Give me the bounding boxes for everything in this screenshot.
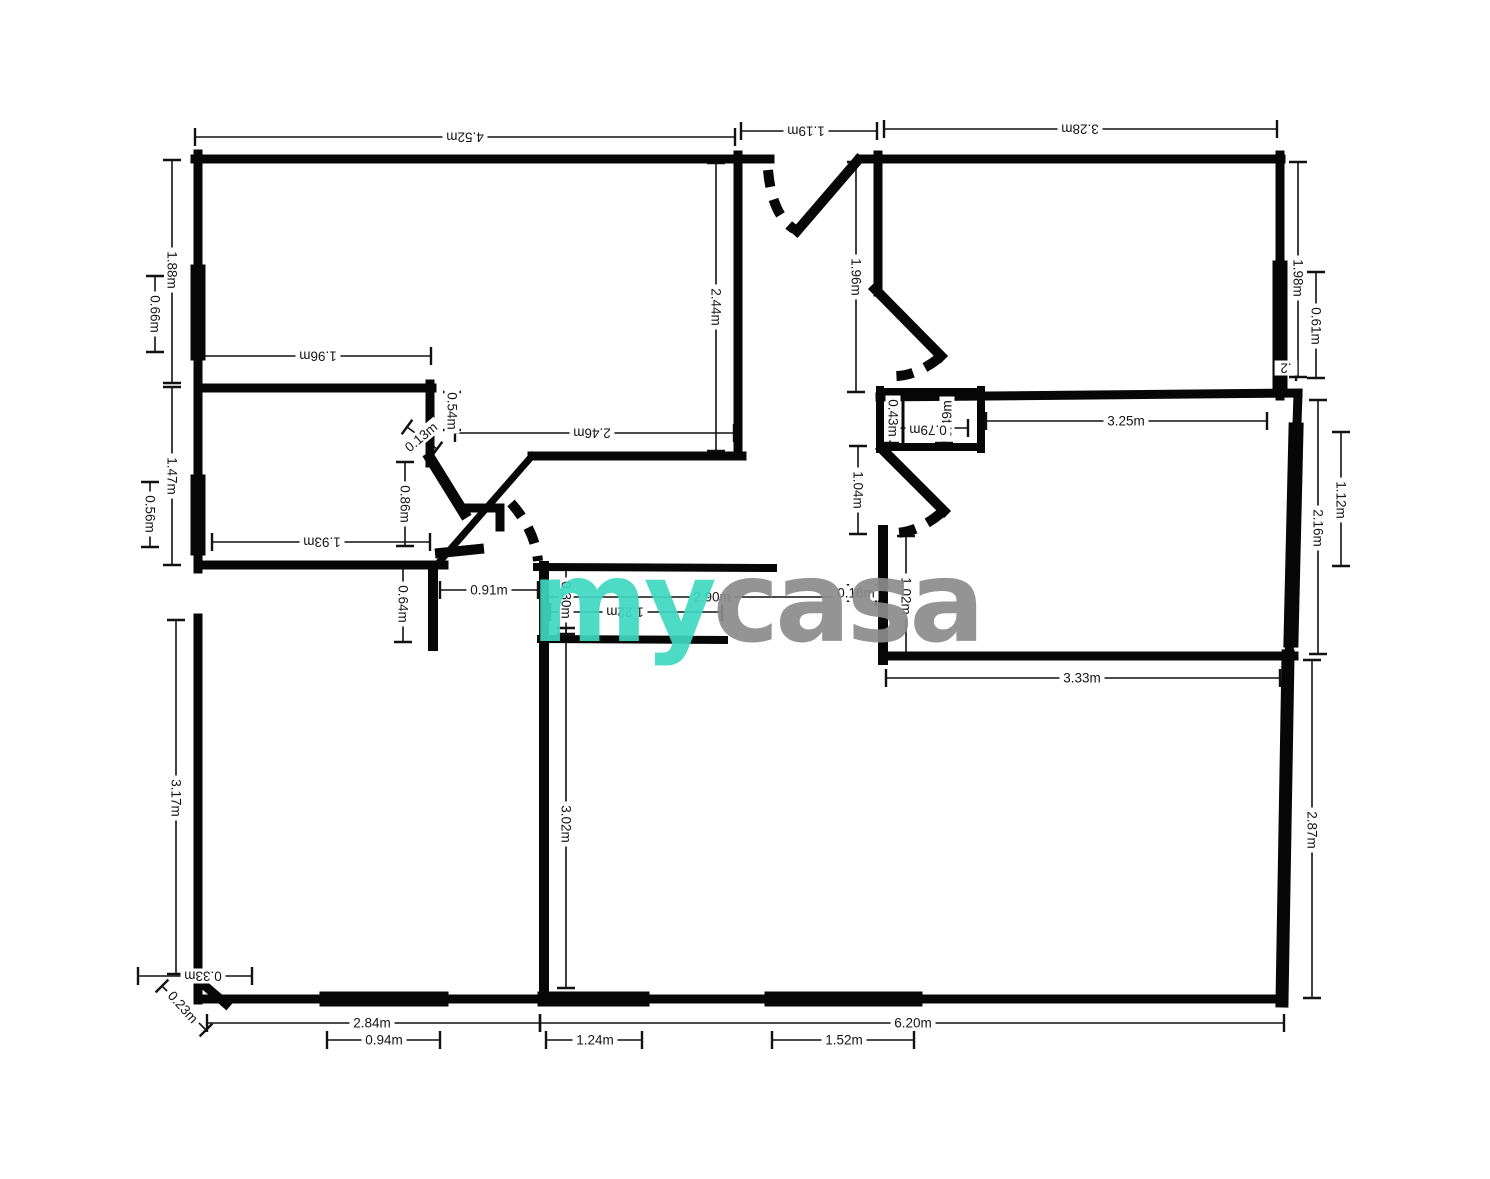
- dimension-label-d119: 1.19m: [787, 123, 825, 138]
- dimension-label-d328: 3.28m: [1061, 121, 1099, 136]
- wall-segment: [1282, 656, 1288, 1001]
- dimension-label-d196v: 1.96m: [848, 258, 863, 296]
- dimension-label-d043: 0.43m: [885, 399, 900, 437]
- dimension-label-d244: 2.44m: [708, 288, 723, 326]
- wall-segment: [440, 549, 479, 553]
- door-swing-arc: [891, 513, 941, 533]
- dimension-label-d333: 3.33m: [1063, 671, 1101, 686]
- dimension-label-d016: 0.16m: [837, 586, 875, 601]
- walls: [195, 154, 1298, 1004]
- door-swing-arc: [889, 358, 939, 376]
- dimension-label-d152: 1.52m: [825, 1033, 863, 1048]
- dimension-label-d284: 2.84m: [353, 1016, 391, 1031]
- dimension-label-d122: 1.22m: [606, 604, 644, 619]
- dimension-label-d102: 1.02m: [898, 577, 913, 615]
- dimension-label-d124: 1.24m: [576, 1033, 614, 1048]
- dimension-label-d452: 4.52m: [446, 129, 484, 144]
- wall-segment: [1291, 430, 1296, 640]
- door-swing-arc: [768, 170, 794, 229]
- dimension-label-d112: 1.12m: [1333, 481, 1348, 519]
- wall-segment: [880, 393, 1298, 397]
- dimension-label-d079: 0.79m: [909, 422, 947, 437]
- wall-segment: [882, 449, 944, 511]
- dimension-label-d033: 0.33m: [184, 968, 222, 983]
- dimension-label-d056: 0.56m: [142, 495, 157, 533]
- dimension-label-d216: 2.16m: [1310, 509, 1325, 547]
- dimension-label-d198: 1.98m: [1290, 259, 1305, 297]
- dimension-label-d086: 0.86m: [397, 485, 412, 523]
- dimension-label-d104: 1.04m: [850, 471, 865, 509]
- dimension-label-d246: 2.46m: [573, 425, 611, 440]
- dimension-label-d054: 0.54m: [444, 392, 459, 430]
- dimension-label-d064: 0.64m: [395, 585, 410, 623]
- dimension-label-d317: 3.17m: [168, 779, 183, 817]
- dimension-label-d325: 3.25m: [1107, 414, 1145, 429]
- dimension-label-d066: 0.66m: [147, 295, 162, 333]
- wall-segment: [537, 567, 773, 568]
- dimension-label-d091: 0.91m: [470, 583, 508, 598]
- dimension-label-d188: 1.88m: [164, 251, 179, 289]
- dimension-label-d620: 6.20m: [894, 1016, 932, 1031]
- dimension-label-d094: 0.94m: [365, 1033, 403, 1048]
- dimension-label-d287: 2.87m: [1304, 811, 1319, 849]
- wall-segment: [541, 639, 724, 640]
- dimension-label-d196h: 1.96m: [299, 348, 337, 363]
- dimension-label-d030: 0.30m: [558, 581, 573, 619]
- floor-plan-page: 4.52m1.19m3.28m1.88m0.66m1.96m1.47m0.56m…: [0, 0, 1490, 1179]
- dimension-label-d302: 3.02m: [558, 805, 573, 843]
- dimension-label-d193: 1.93m: [303, 534, 341, 549]
- dimension-label-d147: 1.47m: [164, 457, 179, 495]
- dimension-label-d290: 2.90m: [693, 590, 731, 605]
- wall-segment: [430, 458, 464, 513]
- floor-plan-canvas: 4.52m1.19m3.28m1.88m0.66m1.96m1.47m0.56m…: [0, 0, 1490, 1179]
- door-swing-arc: [511, 503, 538, 561]
- wall-segment: [875, 289, 941, 356]
- dimension-label-d02: .2: [1280, 360, 1291, 375]
- wall-segment: [797, 160, 858, 231]
- dimension-tick: [402, 420, 413, 435]
- dimension-label-d061: 0.61m: [1308, 307, 1323, 345]
